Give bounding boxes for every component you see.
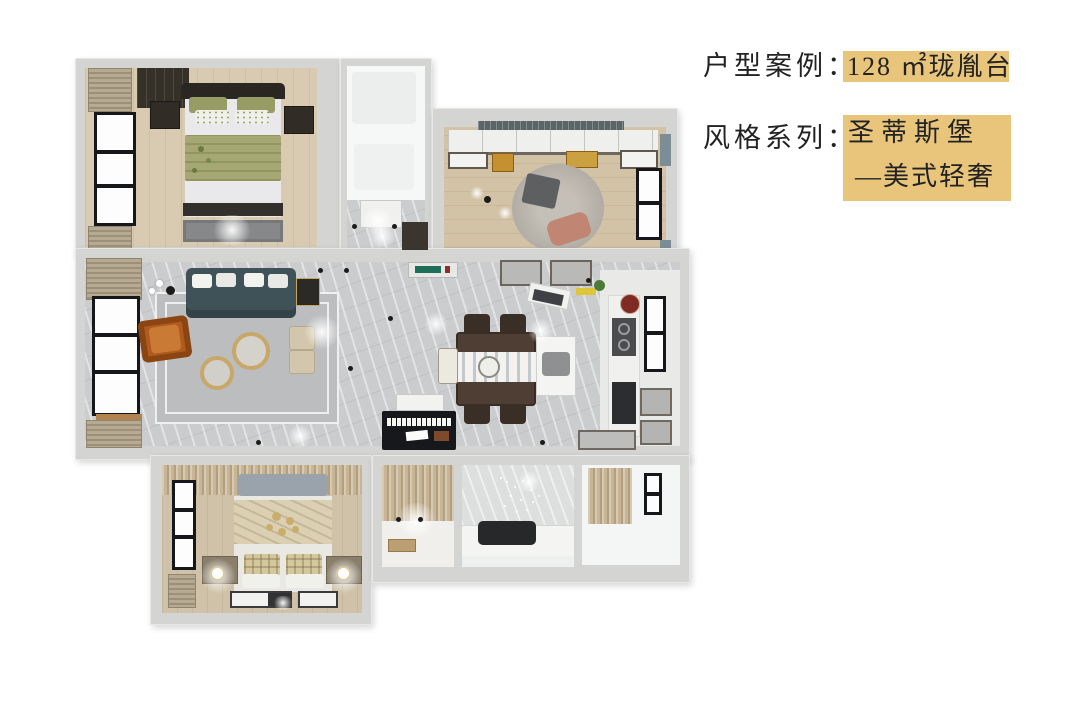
light-glow xyxy=(210,215,254,245)
style-value-line2: —美式轻奢 xyxy=(843,162,1011,192)
case-highlight: 128 ㎡珑胤台 xyxy=(843,51,1009,82)
light-glow xyxy=(368,222,396,250)
pendant-lamp xyxy=(484,196,491,203)
base-cabinet xyxy=(640,388,672,416)
end-armchair xyxy=(438,348,458,384)
sofa-pillow xyxy=(216,273,236,287)
sink xyxy=(478,521,536,545)
master-bed xyxy=(181,83,285,217)
nightstand xyxy=(284,106,314,134)
chandelier xyxy=(272,512,281,521)
table-lamp xyxy=(210,566,225,581)
case-value: 128 ㎡珑胤台 xyxy=(843,52,1013,82)
gold-coffee-table xyxy=(200,356,234,390)
lamp-globe xyxy=(149,288,155,294)
balcony-window xyxy=(92,296,140,416)
pillow xyxy=(286,574,324,588)
ceiling-light-dot xyxy=(540,440,545,445)
chandelier xyxy=(278,528,286,536)
chandelier xyxy=(292,526,299,533)
light-glow xyxy=(424,312,448,336)
tall-cabinet xyxy=(612,382,636,424)
books xyxy=(492,153,514,172)
island-stool xyxy=(542,352,570,376)
sofa-pillow xyxy=(192,274,212,288)
artwork xyxy=(415,266,441,273)
dining-chair xyxy=(464,404,490,424)
books xyxy=(434,431,449,441)
nightstand xyxy=(150,101,180,129)
balcony-blind xyxy=(86,258,142,300)
sofa-pillow xyxy=(244,273,264,287)
gold-coffee-table xyxy=(232,332,270,370)
table-lamp xyxy=(336,566,351,581)
utility-window xyxy=(644,473,662,515)
dining-chair xyxy=(500,404,526,424)
chair-cushion xyxy=(148,324,181,354)
style-label: 风格系列： xyxy=(703,122,858,154)
shower-area xyxy=(352,72,416,124)
plant-sprig xyxy=(198,146,204,152)
wood-panel xyxy=(588,468,632,524)
plaid-pillow xyxy=(286,554,322,576)
marble-wall xyxy=(462,465,574,525)
light-glow xyxy=(528,318,554,344)
floral-pillow xyxy=(195,110,229,124)
window-blind xyxy=(168,574,196,608)
style-highlight: 圣蒂斯堡 —美式轻奢 xyxy=(843,115,1011,201)
hall-cabinet xyxy=(402,222,428,250)
red-book xyxy=(445,266,450,273)
side-cabinet xyxy=(296,278,320,306)
ceiling-light-dot xyxy=(586,278,591,283)
curtain xyxy=(660,134,671,166)
floor-lamp xyxy=(166,286,175,295)
headboard xyxy=(238,474,328,496)
blanket xyxy=(234,500,332,544)
wall-cabinet xyxy=(448,152,488,169)
style-value-line1: 圣蒂斯堡 xyxy=(843,115,1011,148)
light-glow xyxy=(288,424,312,448)
burner xyxy=(618,339,630,351)
bath-fixture xyxy=(354,144,414,190)
light-glow xyxy=(498,206,512,220)
bed xyxy=(234,496,332,592)
blanket xyxy=(185,135,281,181)
round-sign xyxy=(620,294,640,314)
centerpiece xyxy=(478,356,500,378)
console-table xyxy=(408,262,458,278)
case-label: 户型案例： xyxy=(703,50,858,82)
light-glow xyxy=(272,596,294,610)
chandelier xyxy=(286,517,294,525)
burner xyxy=(618,323,630,335)
ceiling-light-dot xyxy=(344,268,349,273)
sparkle-lights xyxy=(500,477,502,479)
bedroom-window xyxy=(172,480,196,570)
window-blind xyxy=(88,68,132,112)
ceiling-light-dot xyxy=(352,224,357,229)
sofa xyxy=(186,268,296,318)
plant-sprig xyxy=(192,168,197,173)
cooktop xyxy=(612,318,636,356)
chandelier xyxy=(266,524,273,531)
wall-cabinet xyxy=(620,150,658,169)
ottoman xyxy=(289,350,315,374)
plant xyxy=(594,280,605,291)
ceiling-light-dot xyxy=(396,517,401,522)
ceiling-light-dot xyxy=(388,316,393,321)
master-window xyxy=(94,112,136,226)
ceiling-light-dot xyxy=(418,517,423,522)
bottom-rooms xyxy=(372,455,690,583)
plaid-pillow xyxy=(244,554,280,576)
light-glow xyxy=(470,186,484,200)
piano-keys xyxy=(386,418,452,426)
ceiling-light-dot xyxy=(348,366,353,371)
sofa-pillow xyxy=(268,274,288,288)
curtain-rail xyxy=(478,121,624,130)
accent-armchair xyxy=(137,315,192,364)
base-cabinet xyxy=(578,430,636,450)
light-glow xyxy=(304,314,340,350)
piano-bench xyxy=(396,394,444,411)
kitchen-window xyxy=(644,296,666,372)
plant-sprig xyxy=(206,158,211,163)
window-blind xyxy=(88,226,132,250)
light-fixture xyxy=(576,288,596,295)
floral-pillow xyxy=(235,110,269,124)
lamp-globe xyxy=(156,280,163,287)
ceiling-light-dot xyxy=(256,440,261,445)
floor-rug xyxy=(298,591,338,608)
balcony-blind xyxy=(86,420,142,448)
base-cabinet xyxy=(640,420,672,445)
pillow xyxy=(242,574,280,588)
dining-chair xyxy=(464,314,490,334)
ceiling-light-dot xyxy=(318,268,323,273)
light-glow xyxy=(518,471,540,493)
piano xyxy=(382,394,456,450)
floor-tray xyxy=(388,539,416,552)
study-window xyxy=(636,168,662,240)
floorplan-poster: 户型案例： 128 ㎡珑胤台 风格系列： 圣蒂斯堡 —美式轻奢 xyxy=(0,0,1080,703)
dining-chair xyxy=(500,314,526,334)
